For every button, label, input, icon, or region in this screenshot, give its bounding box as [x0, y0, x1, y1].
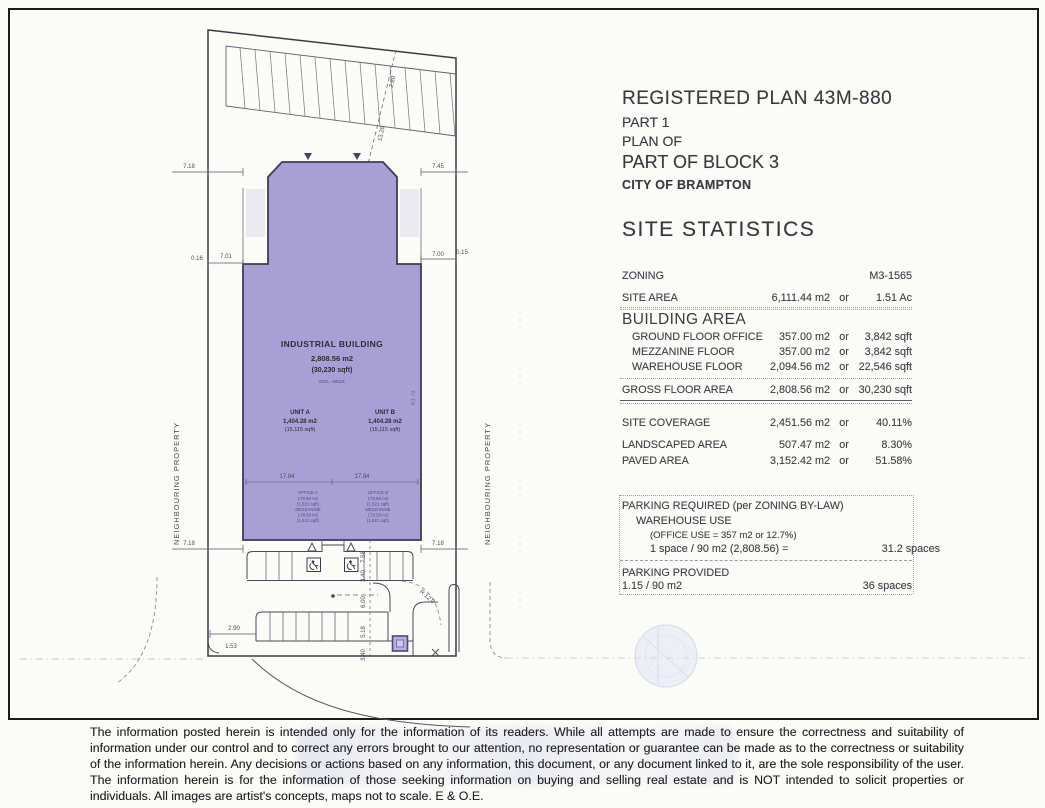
divider	[620, 400, 912, 401]
ground-floor-office-row: GROUND FLOOR OFFICE 357.00 m2 or 3,842 s…	[622, 331, 912, 343]
office-use-note-row: (OFFICE USE = 357 m2 or 12.7%)	[622, 530, 940, 541]
building-name: INDUSTRIAL BUILDING	[281, 339, 383, 349]
landscaped-area-row: LANDSCAPED AREA 507.47 m2 or 8.30%	[622, 439, 912, 451]
parking-row-upper	[247, 540, 413, 581]
divider	[620, 307, 912, 308]
gross-floor-area-row: GROSS FLOOR AREA 2,808.56 m2 or 30,230 s…	[622, 384, 912, 396]
site-area-imp: 1.51 Ac	[858, 292, 912, 304]
dim-top-left: 7.18	[183, 164, 195, 170]
dim-unit-b-width: 17.84	[354, 474, 370, 480]
unit-b-sqft: (15,115 sqft)	[370, 427, 401, 433]
dim-unit-a-width: 17.84	[279, 474, 295, 480]
parking-required-value: 31.2 spaces	[850, 543, 940, 555]
divider	[619, 495, 620, 594]
dim-drive: 2.90	[228, 626, 240, 632]
parking-provided-row: PARKING PROVIDED	[622, 567, 912, 579]
parking-ratio-row: 1 space / 90 m2 (2,808.56) = 31.2 spaces	[622, 543, 940, 555]
plan-part: PART 1	[622, 114, 892, 130]
site-coverage-row: SITE COVERAGE 2,451.56 m2 or 40.11%	[622, 417, 912, 429]
scan-smudge	[246, 189, 265, 237]
building-area-header: BUILDING AREA	[622, 311, 746, 329]
warehouse-floor-row: WAREHOUSE FLOOR 2,094.56 m2 or 22,546 sq…	[622, 361, 912, 373]
dim-diag: 13.26	[378, 125, 387, 142]
dim-depth: 43.78	[411, 390, 417, 406]
accessible-parking-icon	[307, 558, 321, 572]
dim-radius: R 12.0	[418, 589, 436, 605]
entrance-driveway	[373, 581, 459, 656]
unit-a-m2: 1,404.28 m2	[283, 419, 317, 425]
title-block: REGISTERED PLAN 43M-880 PART 1 PLAN OF P…	[622, 88, 892, 192]
building-note: INCL. MEZZ	[319, 379, 345, 384]
svg-text:OFFICE B: OFFICE B	[368, 490, 388, 495]
warehouse-use-row: WAREHOUSE USE	[622, 515, 926, 527]
dim-left-jog: 0.16	[191, 256, 203, 262]
unit-a-sqft: (15,115 sqft)	[285, 427, 316, 433]
dim-col-3: 6.00	[361, 596, 367, 608]
neighbouring-property-right: NEIGHBOURING PROPERTY	[483, 422, 492, 545]
parking-provided-ratio-row: 1.15 / 90 m2 36 spaces	[622, 580, 912, 592]
office-b-block: OFFICE B 178.50 m2 (1,921 sqft) MEZZANIN…	[365, 490, 390, 523]
svg-text:MEZZANINE: MEZZANINE	[295, 507, 320, 512]
setback-construction-line: 2.80 13.26	[367, 50, 397, 168]
unit-b-m2: 1,404.28 m2	[368, 419, 402, 425]
site-area-row: SITE AREA 6,111.44 m2 or 1.51 Ac	[622, 292, 912, 304]
svg-text:(1,921 sqft): (1,921 sqft)	[297, 518, 320, 523]
divider	[620, 594, 912, 595]
svg-text:178.50 m2: 178.50 m2	[368, 496, 389, 501]
dim-right-strip: 7.00	[432, 252, 444, 258]
building-area-sqft: (30,230 sqft)	[312, 367, 353, 374]
divider	[620, 495, 912, 496]
neighbouring-property-left: NEIGHBOURING PROPERTY	[172, 422, 181, 545]
dim-left-strip: 7.01	[220, 254, 232, 260]
svg-text:178.50 m2: 178.50 m2	[368, 513, 389, 518]
plan-title: REGISTERED PLAN 43M-880	[622, 88, 892, 110]
parking-required-row: PARKING REQUIRED (per ZONING BY-LAW)	[622, 500, 912, 512]
dim-top-right: 7.45	[432, 164, 444, 170]
svg-text:(1,921 sqft): (1,921 sqft)	[367, 502, 390, 507]
scan-smudge	[400, 189, 419, 237]
dim-corner: 1.53	[225, 644, 237, 650]
zoning-row: ZONING M3-1565	[622, 270, 912, 282]
zoning-label: ZONING	[622, 270, 754, 282]
zoning-value: M3-1565	[858, 270, 912, 282]
divider	[620, 378, 912, 379]
svg-text:(1,921 sqft): (1,921 sqft)	[297, 502, 320, 507]
mezzanine-floor-row: MEZZANINE FLOOR 357.00 m2 or 3,842 sqft	[622, 346, 912, 358]
divider	[620, 560, 912, 561]
building-area-m2: 2,808.56 m2	[311, 354, 353, 363]
site-area-m2: 6,111.44 m2	[754, 292, 830, 304]
divider	[620, 309, 912, 310]
plan-of: PLAN OF	[622, 133, 892, 149]
dim-bottom-left: 7.18	[183, 541, 195, 547]
dim-col-4: 5.18	[361, 626, 367, 638]
aisle-marker	[331, 594, 378, 598]
unit-b-name: UNIT B	[375, 410, 396, 416]
svg-text:178.50 m2: 178.50 m2	[298, 513, 319, 518]
svg-text:178.50 m2: 178.50 m2	[298, 496, 319, 501]
dim-diag-top: 2.80	[389, 75, 397, 88]
divider	[620, 403, 912, 404]
site-statistics-heading: SITE STATISTICS	[622, 218, 815, 242]
plan-city: CITY OF BRAMPTON	[622, 178, 892, 192]
approval-stamp	[635, 625, 697, 687]
unit-a-name: UNIT A	[290, 410, 310, 416]
disclaimer-text: The information posted herein is intende…	[90, 725, 964, 805]
accessible-parking-icon	[345, 558, 359, 572]
dim-right-jog: 0.15	[456, 250, 468, 256]
paved-area-row: PAVED AREA 3,152.42 m2 or 51.58%	[622, 455, 912, 467]
svg-text:(1,921 sqft): (1,921 sqft)	[367, 518, 390, 523]
parking-row-lower	[256, 612, 413, 641]
dim-bottom-right: 7.18	[432, 541, 444, 547]
plan-block: PART OF BLOCK 3	[622, 152, 892, 173]
dim-col-5: 3.40	[361, 649, 367, 661]
svg-text:OFFICE A: OFFICE A	[298, 490, 318, 495]
svg-text:MEZZANINE: MEZZANINE	[365, 507, 390, 512]
top-parking-row	[226, 46, 456, 136]
parking-provided-value: 36 spaces	[822, 580, 912, 592]
office-a-block: OFFICE A 178.50 m2 (1,921 sqft) MEZZANIN…	[295, 490, 320, 523]
site-area-label: SITE AREA	[622, 292, 754, 304]
